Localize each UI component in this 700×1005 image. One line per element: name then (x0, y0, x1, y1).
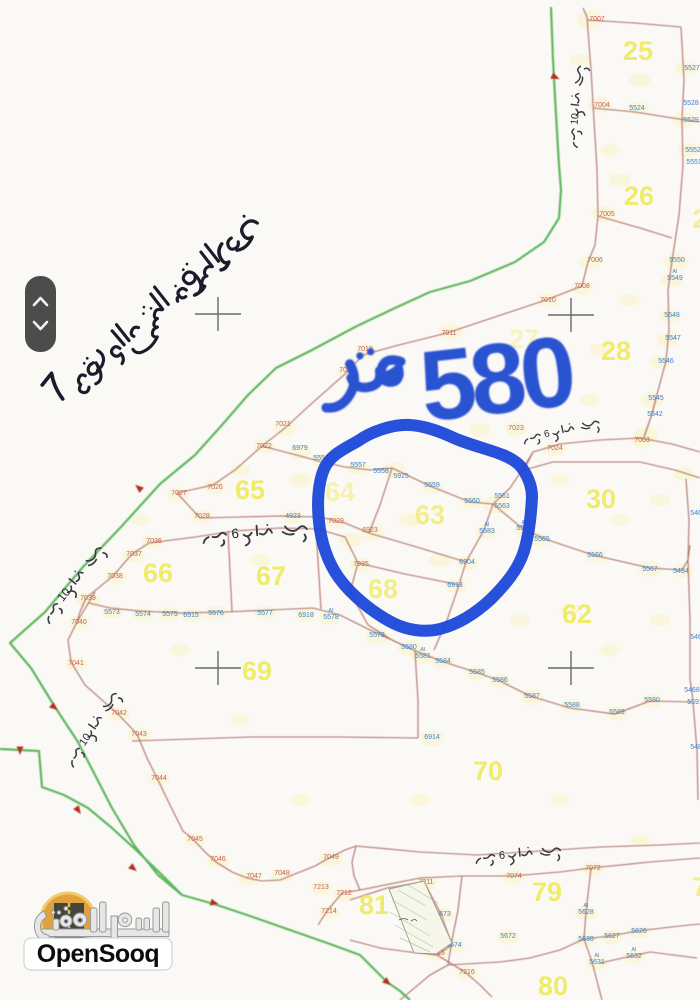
svg-text:5542: 5542 (647, 411, 663, 418)
svg-text:OpenSooq: OpenSooq (37, 940, 159, 968)
svg-text:5584: 5584 (435, 658, 451, 665)
svg-text:5583: 5583 (479, 528, 495, 535)
svg-text:AI: AI (631, 947, 637, 953)
svg-text:5468: 5468 (684, 687, 700, 694)
svg-text:5589: 5589 (609, 709, 625, 716)
svg-text:65: 65 (235, 475, 265, 505)
svg-text:7040: 7040 (71, 619, 87, 626)
svg-text:5586: 5586 (492, 677, 508, 684)
svg-text:5576: 5576 (208, 610, 224, 617)
svg-text:5463: 5463 (690, 510, 700, 517)
svg-text:5552: 5552 (685, 147, 700, 154)
svg-text:6915: 6915 (183, 612, 199, 619)
svg-text:70: 70 (473, 756, 503, 786)
svg-text:7041: 7041 (68, 660, 84, 667)
svg-text:5560: 5560 (464, 498, 480, 505)
svg-text:7213: 7213 (313, 884, 329, 891)
svg-text:5566: 5566 (587, 552, 603, 559)
svg-text:7022: 7022 (256, 443, 272, 450)
svg-text:7005: 7005 (599, 211, 615, 218)
svg-text:5462: 5462 (690, 634, 700, 641)
svg-text:5524: 5524 (629, 105, 645, 112)
svg-text:5631: 5631 (589, 959, 605, 966)
svg-text:5578: 5578 (323, 614, 339, 621)
svg-text:7216: 7216 (459, 969, 475, 976)
svg-text:5559: 5559 (424, 482, 440, 489)
svg-text:7074: 7074 (506, 873, 522, 880)
svg-text:AI: AI (420, 647, 426, 653)
svg-text:5574: 5574 (135, 611, 151, 618)
svg-text:AI: AI (594, 953, 600, 959)
svg-text:7026: 7026 (207, 484, 223, 491)
svg-text:5588: 5588 (564, 702, 580, 709)
svg-text:7027: 7027 (171, 490, 187, 497)
svg-text:6918: 6918 (298, 612, 314, 619)
svg-text:6904: 6904 (459, 559, 475, 566)
svg-text:5494: 5494 (673, 568, 689, 575)
svg-text:64: 64 (325, 477, 355, 507)
svg-text:7037: 7037 (126, 551, 142, 558)
svg-text:5528: 5528 (683, 100, 699, 107)
svg-text:63: 63 (415, 500, 445, 530)
svg-text:5557: 5557 (350, 462, 366, 469)
svg-text:25: 25 (623, 36, 653, 66)
svg-text:7045: 7045 (187, 836, 203, 843)
svg-text:5577: 5577 (257, 610, 273, 617)
svg-text:5590: 5590 (644, 697, 660, 704)
svg-text:7010: 7010 (540, 297, 556, 304)
svg-text:7: 7 (692, 872, 700, 902)
svg-text:7024: 7024 (547, 445, 563, 452)
svg-text:28: 28 (601, 336, 631, 366)
svg-text:5579: 5579 (369, 632, 385, 639)
svg-text:7036: 7036 (146, 538, 162, 545)
svg-text:79: 79 (532, 877, 562, 907)
svg-text:7028: 7028 (194, 513, 210, 520)
svg-text:69: 69 (242, 656, 272, 686)
svg-text:5630: 5630 (578, 936, 594, 943)
svg-text:7049: 7049 (323, 854, 339, 861)
svg-text:4923: 4923 (285, 513, 301, 520)
svg-text:5591: 5591 (687, 699, 700, 706)
svg-text:5925: 5925 (393, 473, 409, 480)
svg-text:7212: 7212 (336, 890, 352, 897)
svg-text:7029: 7029 (328, 518, 344, 525)
svg-text:6923: 6923 (362, 527, 378, 534)
svg-text:7072: 7072 (585, 865, 601, 872)
svg-text:AI: AI (484, 522, 490, 528)
svg-text:7003: 7003 (634, 437, 650, 444)
svg-text:26: 26 (624, 181, 654, 211)
svg-text:5558: 5558 (373, 468, 389, 475)
svg-text:81: 81 (359, 890, 389, 920)
svg-text:5545: 5545 (648, 395, 664, 402)
svg-text:80: 80 (538, 971, 568, 1000)
svg-text:5580: 5580 (401, 644, 417, 651)
svg-text:5632: 5632 (626, 953, 642, 960)
svg-text:AI: AI (328, 608, 334, 614)
svg-text:7007: 7007 (589, 16, 605, 23)
svg-text:5575: 5575 (162, 611, 178, 618)
svg-text:10: 10 (569, 112, 582, 125)
svg-text:5529: 5529 (683, 117, 699, 124)
svg-text:6914: 6914 (424, 734, 440, 741)
svg-text:5627: 5627 (604, 933, 620, 940)
svg-text:580: 580 (414, 315, 578, 444)
svg-text:7935: 7935 (353, 561, 369, 568)
svg-text:5628: 5628 (578, 909, 594, 916)
svg-text:5567: 5567 (642, 566, 658, 573)
svg-text:7048: 7048 (274, 870, 290, 877)
svg-text:30: 30 (586, 484, 616, 514)
svg-text:5548: 5548 (664, 312, 680, 319)
svg-text:6979: 6979 (292, 445, 308, 452)
svg-text:5585: 5585 (469, 669, 485, 676)
svg-text:5561: 5561 (494, 493, 510, 500)
svg-text:7042: 7042 (111, 710, 127, 717)
svg-text:5547: 5547 (665, 335, 681, 342)
svg-text:5573: 5573 (104, 609, 120, 616)
svg-text:AI: AI (672, 269, 678, 275)
svg-text:7038: 7038 (107, 573, 123, 580)
svg-text:5672: 5672 (500, 933, 516, 940)
svg-text:7006: 7006 (587, 257, 603, 264)
svg-text:5581: 5581 (415, 653, 431, 660)
svg-text:7043: 7043 (131, 731, 147, 738)
svg-text:67: 67 (256, 561, 286, 591)
svg-text:7008: 7008 (574, 283, 590, 290)
svg-text:7039: 7039 (80, 595, 96, 602)
svg-text:6: 6 (231, 526, 240, 541)
svg-text:5551: 5551 (686, 159, 700, 166)
svg-text:62: 62 (562, 599, 592, 629)
svg-text:2: 2 (692, 204, 700, 234)
svg-text:AI: AI (583, 903, 589, 909)
svg-text:7214: 7214 (321, 908, 337, 915)
svg-text:7046: 7046 (210, 856, 226, 863)
svg-text:5587: 5587 (524, 693, 540, 700)
svg-text:7004: 7004 (594, 102, 610, 109)
svg-text:6: 6 (498, 849, 505, 861)
svg-text:7021: 7021 (275, 421, 291, 428)
svg-text:5565: 5565 (534, 536, 550, 543)
svg-text:7047: 7047 (246, 873, 262, 880)
svg-text:5550: 5550 (669, 257, 685, 264)
svg-text:5563: 5563 (494, 503, 510, 510)
svg-text:5486: 5486 (690, 744, 700, 751)
svg-text:5546: 5546 (658, 358, 674, 365)
svg-text:5527: 5527 (684, 65, 700, 72)
svg-text:5549: 5549 (667, 275, 683, 282)
svg-text:5626: 5626 (631, 928, 647, 935)
svg-text:68: 68 (368, 574, 398, 604)
svg-text:7044: 7044 (151, 775, 167, 782)
svg-text:66: 66 (143, 558, 173, 588)
svg-text:6913: 6913 (447, 582, 463, 589)
